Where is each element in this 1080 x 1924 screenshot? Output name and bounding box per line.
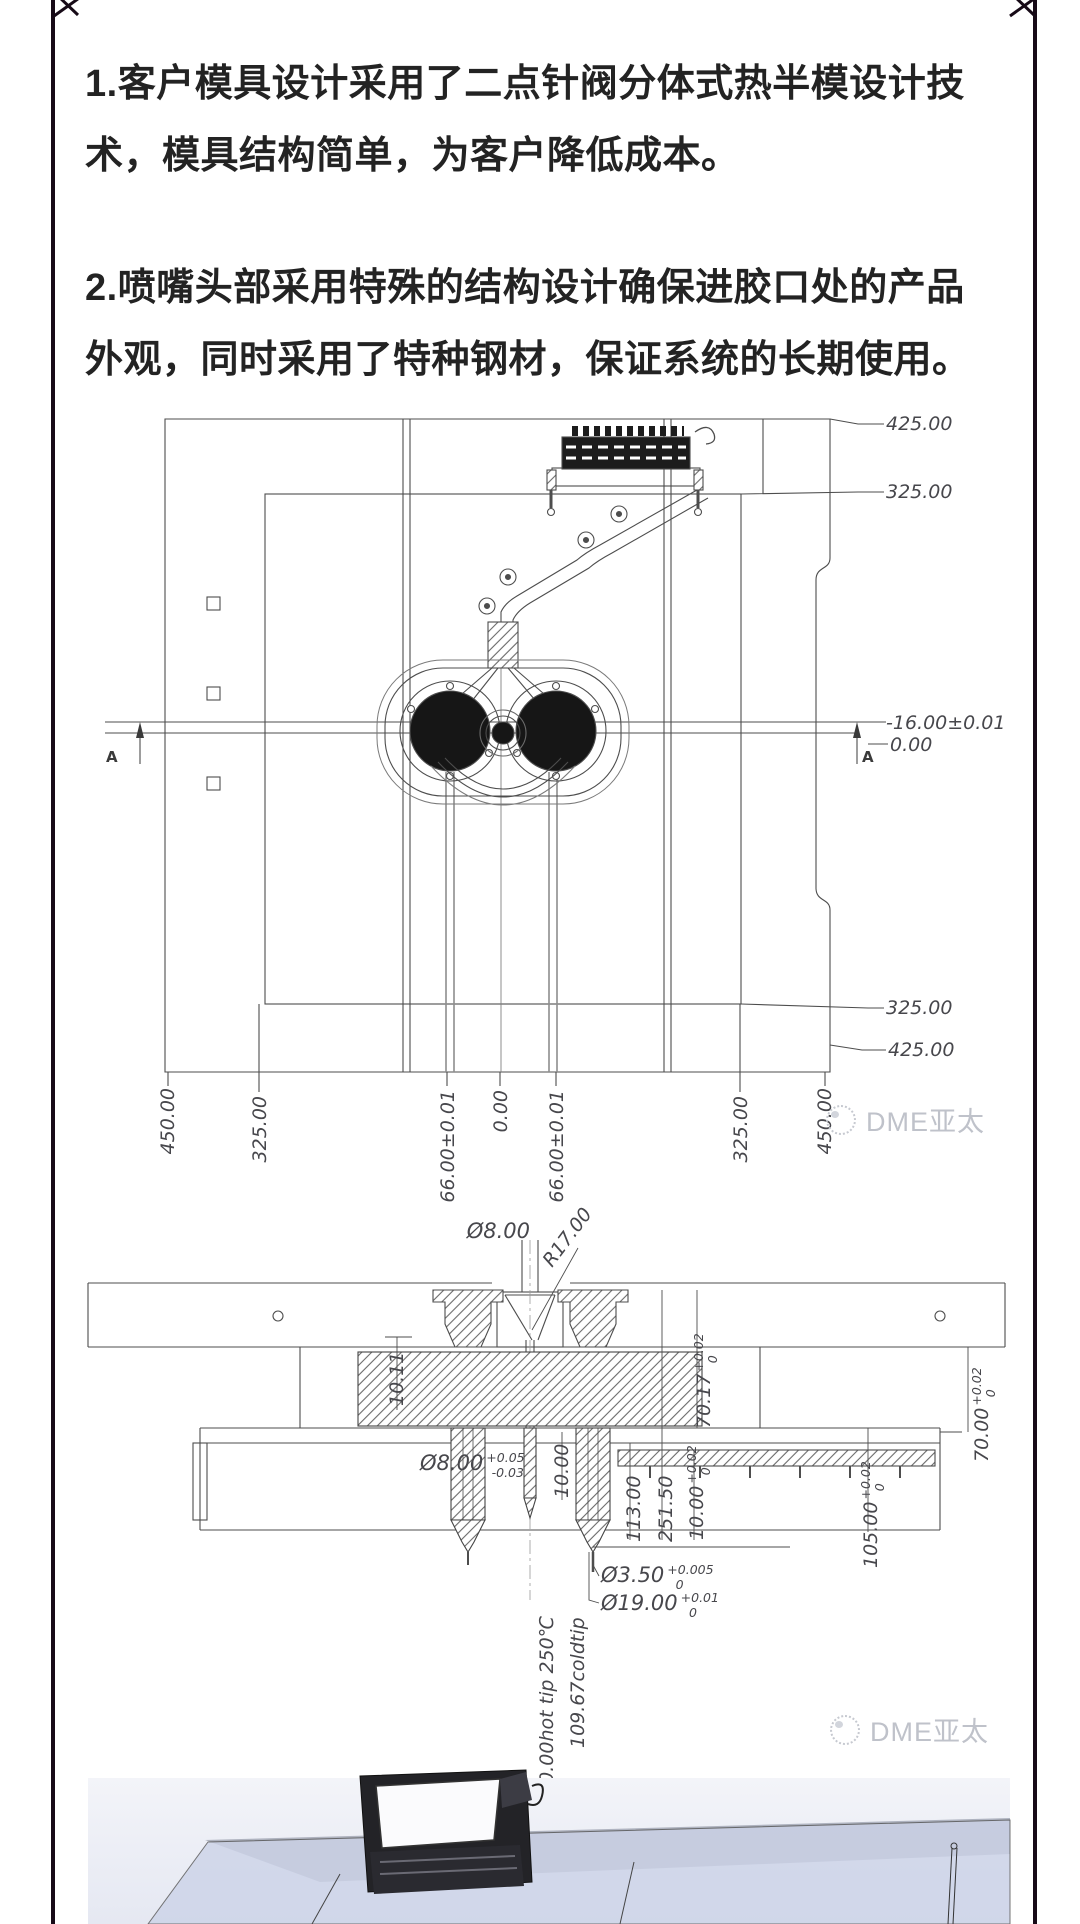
render-3d-panel	[88, 1770, 1010, 1924]
paragraph-1: 1.客户模具设计采用了二点针阀分体式热半模设计技术，模具结构简单，为客户降低成本…	[0, 0, 1080, 192]
dim-label: 66.00±0.01	[546, 1090, 568, 1203]
dme-watermark: DME亚太	[826, 1100, 985, 1139]
dme-logo-icon	[830, 1715, 860, 1745]
dim-label: Ø8.00	[466, 1219, 530, 1243]
corner-mark-icon	[52, 0, 98, 18]
dim-label: 110.00hot tip 250℃	[536, 1615, 558, 1808]
dim-label: 425.00	[888, 1039, 954, 1061]
corner-mark-icon	[996, 0, 1040, 18]
drawing2-cross-section	[88, 1240, 1005, 1603]
dim-label: R17.00	[538, 1204, 596, 1271]
dim-label: 325.00	[249, 1096, 271, 1162]
dim-label: 10.11	[386, 1352, 408, 1406]
article-page: 1.客户模具设计采用了二点针阀分体式热半模设计技术，模具结构简单，为客户降低成本…	[0, 0, 1080, 1924]
dim-label: 325.00	[886, 997, 952, 1019]
dim-label: Ø8.00+0.05-0.03	[419, 1450, 525, 1480]
drawing1-plan-view	[105, 419, 888, 1092]
dme-logo-icon	[826, 1105, 856, 1135]
dim-label: 10.00+0.020	[684, 1445, 713, 1540]
dim-label: 450.00	[157, 1088, 179, 1154]
dim-label: 425.00	[886, 413, 952, 435]
dim-label: 10.00	[551, 1444, 573, 1498]
dim-label: 70.17+0.020	[691, 1333, 720, 1428]
dim-label: 109.67coldtip	[567, 1617, 589, 1748]
section-marker: A	[862, 748, 874, 766]
dim-label: Ø19.00+0.010	[600, 1590, 719, 1620]
dim-label: 66.00±0.01	[437, 1090, 459, 1203]
dim-label: 105.00+0.020	[858, 1461, 887, 1568]
dim-label: 113.00	[623, 1476, 645, 1542]
dim-label: 0.00	[490, 1090, 512, 1132]
dim-label: 325.00	[886, 481, 952, 503]
dim-label: 325.00	[730, 1096, 752, 1162]
dim-label: 0.00	[890, 734, 932, 756]
dme-watermark-text: DME亚太	[866, 1100, 985, 1139]
section-marker: A	[106, 748, 118, 766]
dim-label: Ø3.50+0.0050	[600, 1562, 714, 1592]
dim-label: 70.00+0.020	[969, 1367, 998, 1462]
page-border-right	[1033, 0, 1037, 1924]
page-border-left	[51, 0, 55, 1924]
dme-watermark: DME亚太	[830, 1710, 989, 1749]
dme-watermark-text: DME亚太	[870, 1710, 989, 1749]
drawing1-dimensions: 425.00 325.00 -16.00±0.01 0.00 325.00 42…	[106, 413, 1005, 1203]
paragraph-2: 2.喷嘴头部采用特殊的结构设计确保进胶口处的产品外观，同时采用了特种钢材，保证系…	[0, 192, 1080, 396]
dim-label: 251.50	[655, 1476, 677, 1542]
dim-label: -16.00±0.01	[886, 712, 1005, 734]
connector-box-3d	[360, 1770, 543, 1894]
